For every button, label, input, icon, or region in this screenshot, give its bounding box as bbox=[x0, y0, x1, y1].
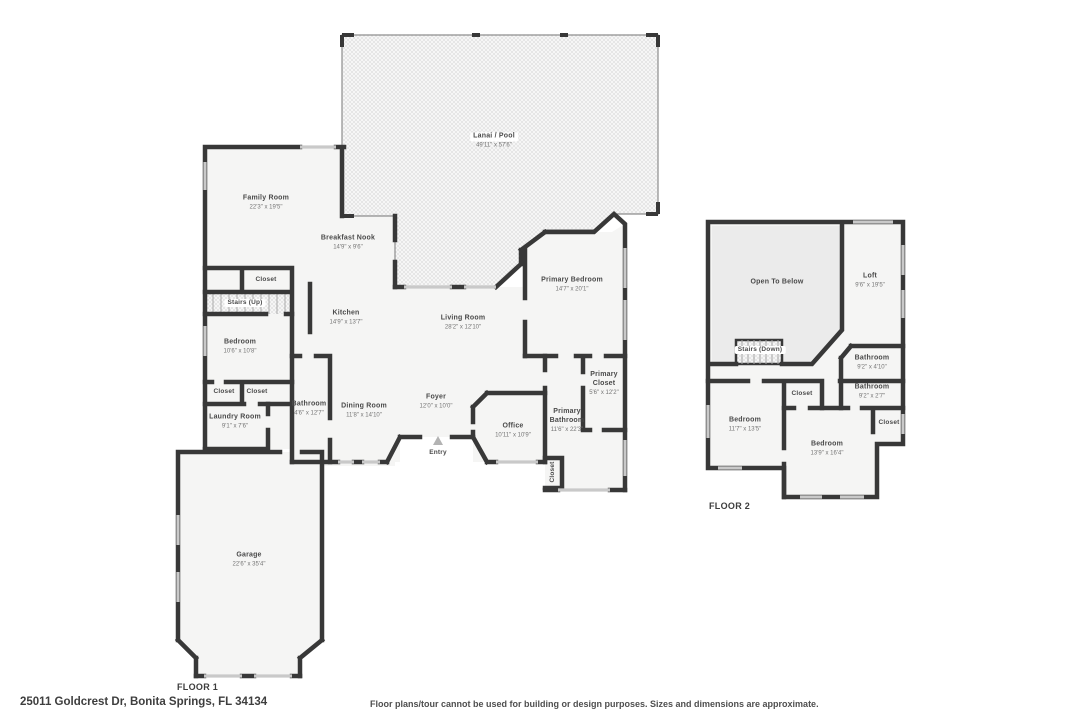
stairs-down-area bbox=[736, 340, 782, 364]
floor2-label: FLOOR 2 bbox=[709, 501, 750, 511]
floor1-label: FLOOR 1 bbox=[177, 682, 218, 692]
entry-direction-triangle bbox=[433, 436, 443, 445]
floor-plan-page: Lanai / Pool 49'11" x 57'6" Family Room … bbox=[0, 0, 1080, 720]
floor-plan-canvas bbox=[0, 0, 1080, 720]
stairs-up-area bbox=[205, 292, 292, 314]
disclaimer-text: Floor plans/tour cannot be used for buil… bbox=[370, 699, 819, 709]
property-address: 25011 Goldcrest Dr, Bonita Springs, FL 3… bbox=[20, 696, 267, 708]
